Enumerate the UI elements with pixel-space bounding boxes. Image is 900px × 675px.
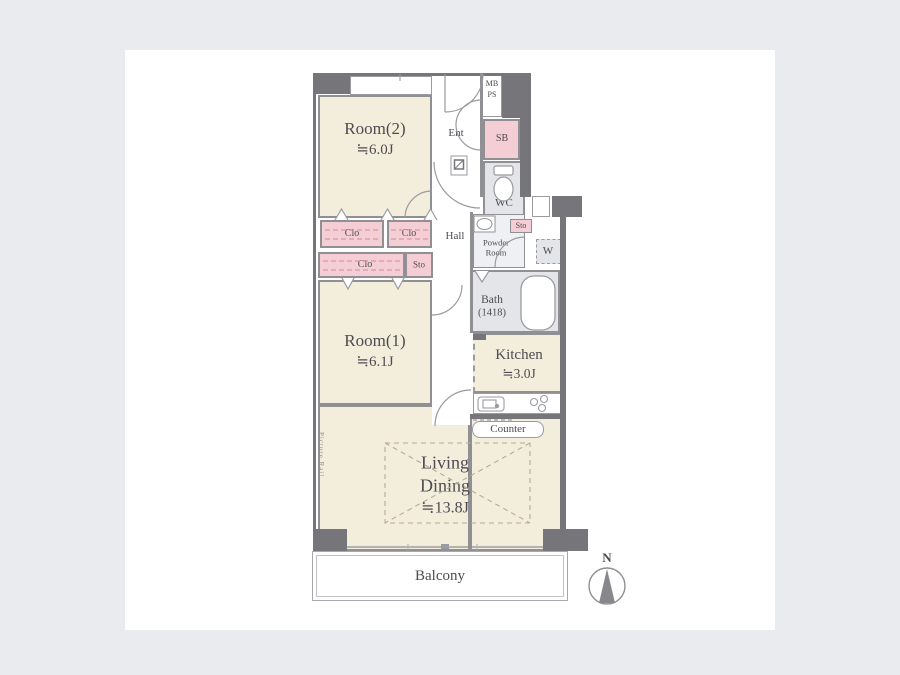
compass-icon [589, 568, 625, 604]
wall-step-block [552, 196, 582, 217]
washer-label: W [543, 246, 553, 258]
wall-ent-divider [480, 73, 483, 197]
kitchen-size: ≒3.0J [502, 367, 535, 381]
room2-name: Room(2) [344, 120, 405, 138]
balcony-label: Balcony [415, 569, 465, 585]
living-label-2: Dining [420, 477, 470, 496]
closet-b-label: Clo [402, 229, 416, 240]
living-label-1: Living [421, 454, 469, 473]
living-size: ≒13.8J [421, 501, 469, 518]
floorplan-card: Room(2) ≒6.0J Ent MB PS SB WC Hall Clo C… [125, 50, 775, 630]
room1-size: ≒6.1J [356, 355, 393, 371]
kitchen-name: Kitchen [495, 348, 542, 364]
wall-left [313, 73, 316, 551]
ent-label: Ent [448, 128, 463, 140]
bath-name: Bath [481, 294, 503, 306]
room1-name: Room(1) [344, 332, 405, 350]
pillar-bottom-right [543, 529, 588, 551]
room2-size: ≒6.0J [356, 143, 393, 159]
wc-label: WC [495, 198, 513, 210]
wall-notch [532, 196, 550, 217]
bath-dim: (1418) [478, 307, 506, 318]
pillar-top-left [313, 73, 350, 94]
wall-right [560, 217, 566, 529]
corridor-patch [432, 405, 472, 425]
counter-label: Counter [490, 424, 525, 436]
storage-a-label: Sto [413, 260, 425, 269]
wall-under-counter [470, 414, 562, 419]
kitchen-counter-strip [473, 393, 562, 414]
shoe-closet-door-arcs [456, 100, 481, 150]
closet-c-label: Clo [358, 260, 372, 271]
powder-room-label-1: Powder [483, 239, 509, 248]
page: { "title": "Apartment floor plan", "colo… [0, 0, 900, 675]
meter-box-icon [451, 156, 467, 175]
hall-label: Hall [446, 231, 465, 243]
north-label: N [602, 551, 611, 565]
entrance-door-arc [445, 74, 483, 112]
ps-label: PS [488, 91, 497, 99]
picture-rail-label: Picture Rail [317, 432, 325, 477]
pillar-bottom-left [313, 529, 347, 551]
powder-room-label-2: Room [486, 249, 507, 258]
wall-right-column [520, 73, 531, 197]
sb-label: SB [496, 134, 508, 145]
room2-window [350, 76, 432, 95]
storage-b-label: Sto [516, 222, 527, 230]
mb-label: MB [486, 80, 498, 88]
wc-hall-door-arc [434, 162, 480, 208]
closet-a-label: Clo [345, 229, 359, 240]
wall-corridor-right [470, 212, 473, 333]
room1-door-arc [432, 285, 462, 315]
